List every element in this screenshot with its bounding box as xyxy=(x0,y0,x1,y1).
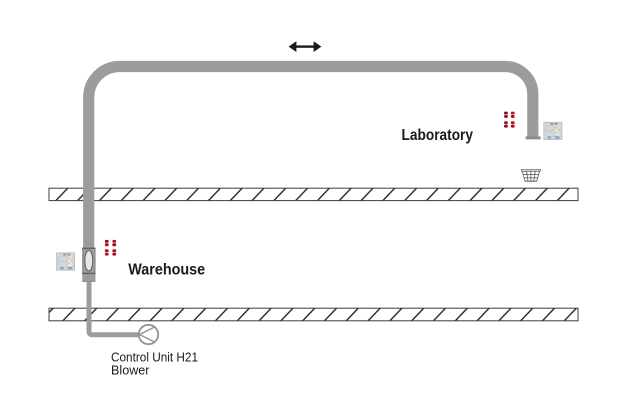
svg-text:Warehouse: Warehouse xyxy=(128,261,205,278)
svg-text:Laboratory: Laboratory xyxy=(402,127,474,144)
svg-text:Blower: Blower xyxy=(111,363,150,377)
svg-text:Control Unit H21: Control Unit H21 xyxy=(111,351,198,365)
